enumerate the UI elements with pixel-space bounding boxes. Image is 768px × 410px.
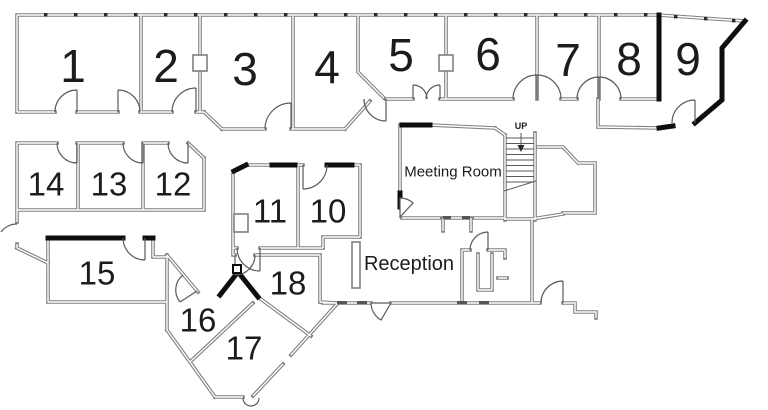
label-room-14: 14 bbox=[28, 166, 65, 203]
cabinet-room11 bbox=[234, 214, 248, 232]
staircase bbox=[504, 133, 536, 191]
label-room-6: 6 bbox=[475, 28, 501, 80]
label-reception: Reception bbox=[364, 253, 454, 275]
label-room-5: 5 bbox=[388, 29, 414, 81]
label-room-15: 15 bbox=[79, 255, 116, 292]
label-room-13: 13 bbox=[91, 166, 128, 203]
label-room-4: 4 bbox=[314, 41, 340, 93]
label-room-16: 16 bbox=[180, 302, 217, 339]
label-room-3: 3 bbox=[232, 43, 258, 95]
wall-box-room5-6 bbox=[439, 55, 453, 71]
label-room-10: 10 bbox=[310, 193, 347, 230]
label-room-12: 12 bbox=[155, 166, 192, 203]
label-room-8: 8 bbox=[616, 33, 642, 85]
label-room-18: 18 bbox=[270, 265, 307, 302]
label-room-17: 17 bbox=[226, 330, 263, 367]
label-stairs-up: UP bbox=[515, 121, 528, 131]
floorplan-page: 123456789101112131415161718Meeting RoomR… bbox=[0, 0, 768, 410]
label-meeting-room: Meeting Room bbox=[404, 164, 502, 181]
label-room-1: 1 bbox=[60, 40, 86, 92]
floorplan-canvas: 123456789101112131415161718Meeting RoomR… bbox=[0, 0, 768, 410]
label-room-11: 11 bbox=[253, 193, 287, 230]
label-room-9: 9 bbox=[675, 33, 701, 85]
wall-box-room2-3 bbox=[193, 55, 207, 71]
label-room-7: 7 bbox=[555, 34, 581, 86]
reception-desk bbox=[352, 242, 360, 288]
label-room-2: 2 bbox=[153, 40, 179, 92]
door-post bbox=[233, 265, 241, 273]
